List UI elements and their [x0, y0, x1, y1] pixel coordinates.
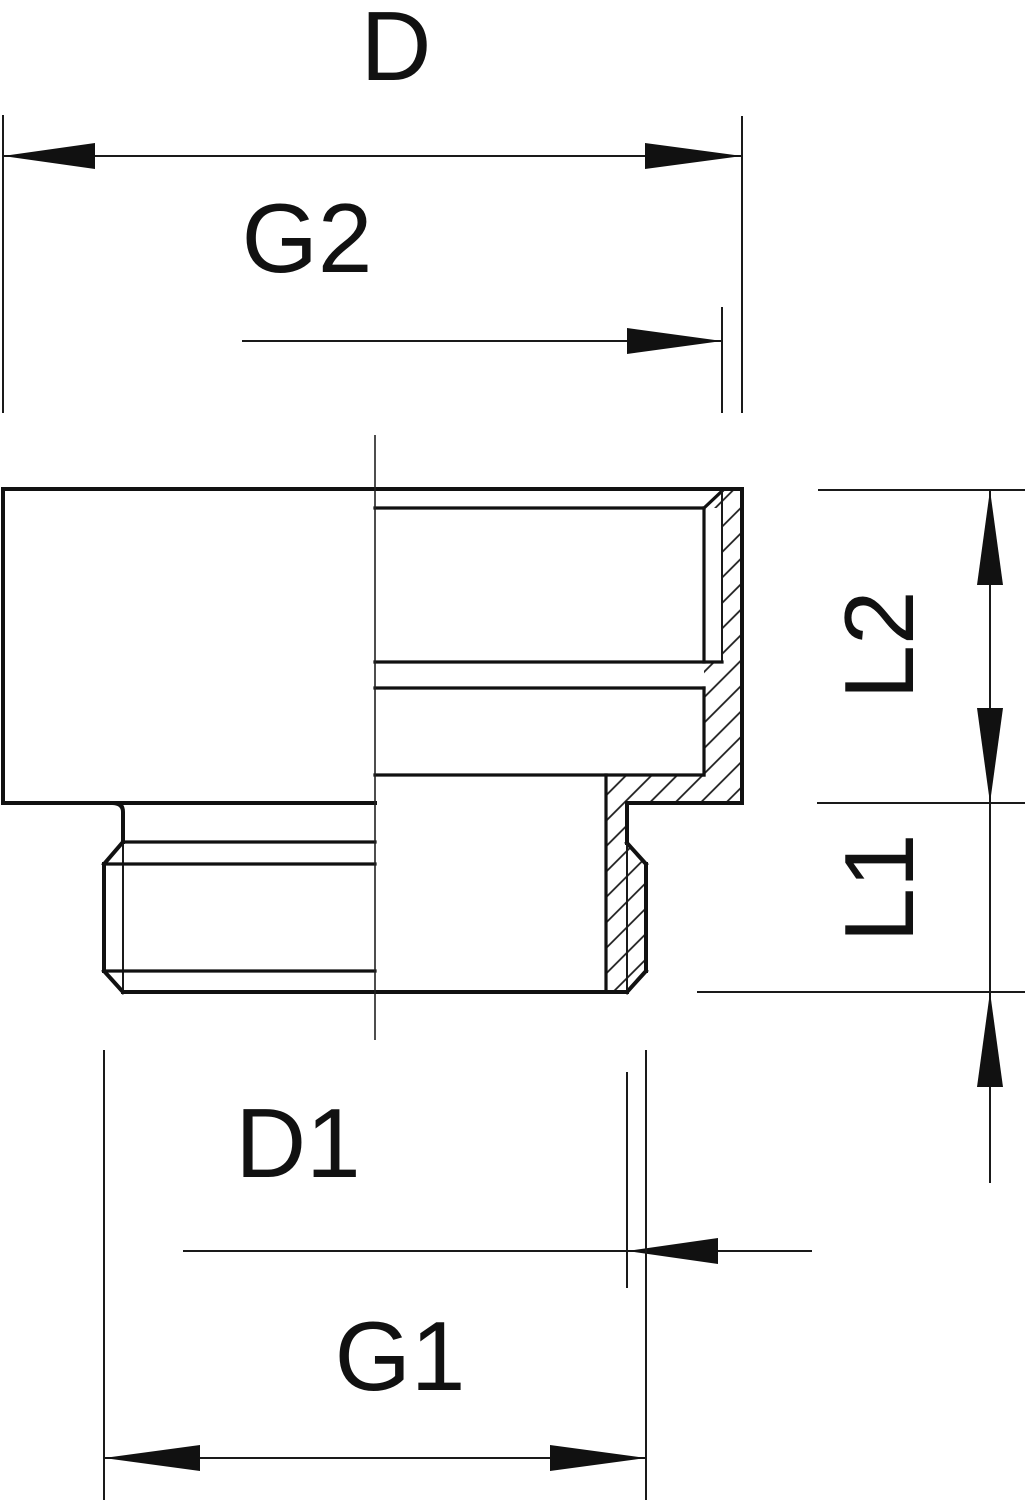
dim-label-d1: D1 [235, 1088, 360, 1198]
dimension-g1: G1 [104, 1050, 646, 1500]
dimension-l2-l1: L2 L1 [697, 490, 1025, 1183]
g1-arrowhead-left [104, 1445, 200, 1471]
dim-label-g1: G1 [335, 1301, 466, 1411]
hatch-upper-wall [722, 491, 742, 662]
dimension-d1: D1 [183, 1072, 812, 1288]
g2-arrowhead [627, 328, 722, 354]
l1-arrowhead-up [977, 992, 1003, 1087]
technical-drawing-page: D G2 L2 L1 D1 G1 [0, 0, 1025, 1500]
dimension-g2: G2 [242, 183, 722, 413]
dim-label-l2: L2 [824, 590, 934, 699]
g1-arrowhead-right [550, 1445, 646, 1471]
male-chamfer-top-left [104, 842, 123, 864]
male-chamfer-bottom-left [104, 971, 123, 992]
dim-label-g2: G2 [242, 183, 373, 293]
reducer-adapter-drawing: D G2 L2 L1 D1 G1 [0, 0, 1025, 1500]
d1-arrowhead [627, 1238, 718, 1264]
male-neck-left [114, 803, 123, 842]
dim-label-d: D [361, 0, 432, 101]
l2-arrowhead-up [977, 490, 1003, 585]
hatch-lower-wall [704, 662, 742, 775]
d-arrowhead-right [645, 143, 742, 169]
hatch-bottom-flange [606, 775, 742, 803]
dim-label-l1: L1 [824, 833, 934, 942]
l2-arrowhead-down [977, 708, 1003, 803]
d-arrowhead-left [3, 143, 95, 169]
